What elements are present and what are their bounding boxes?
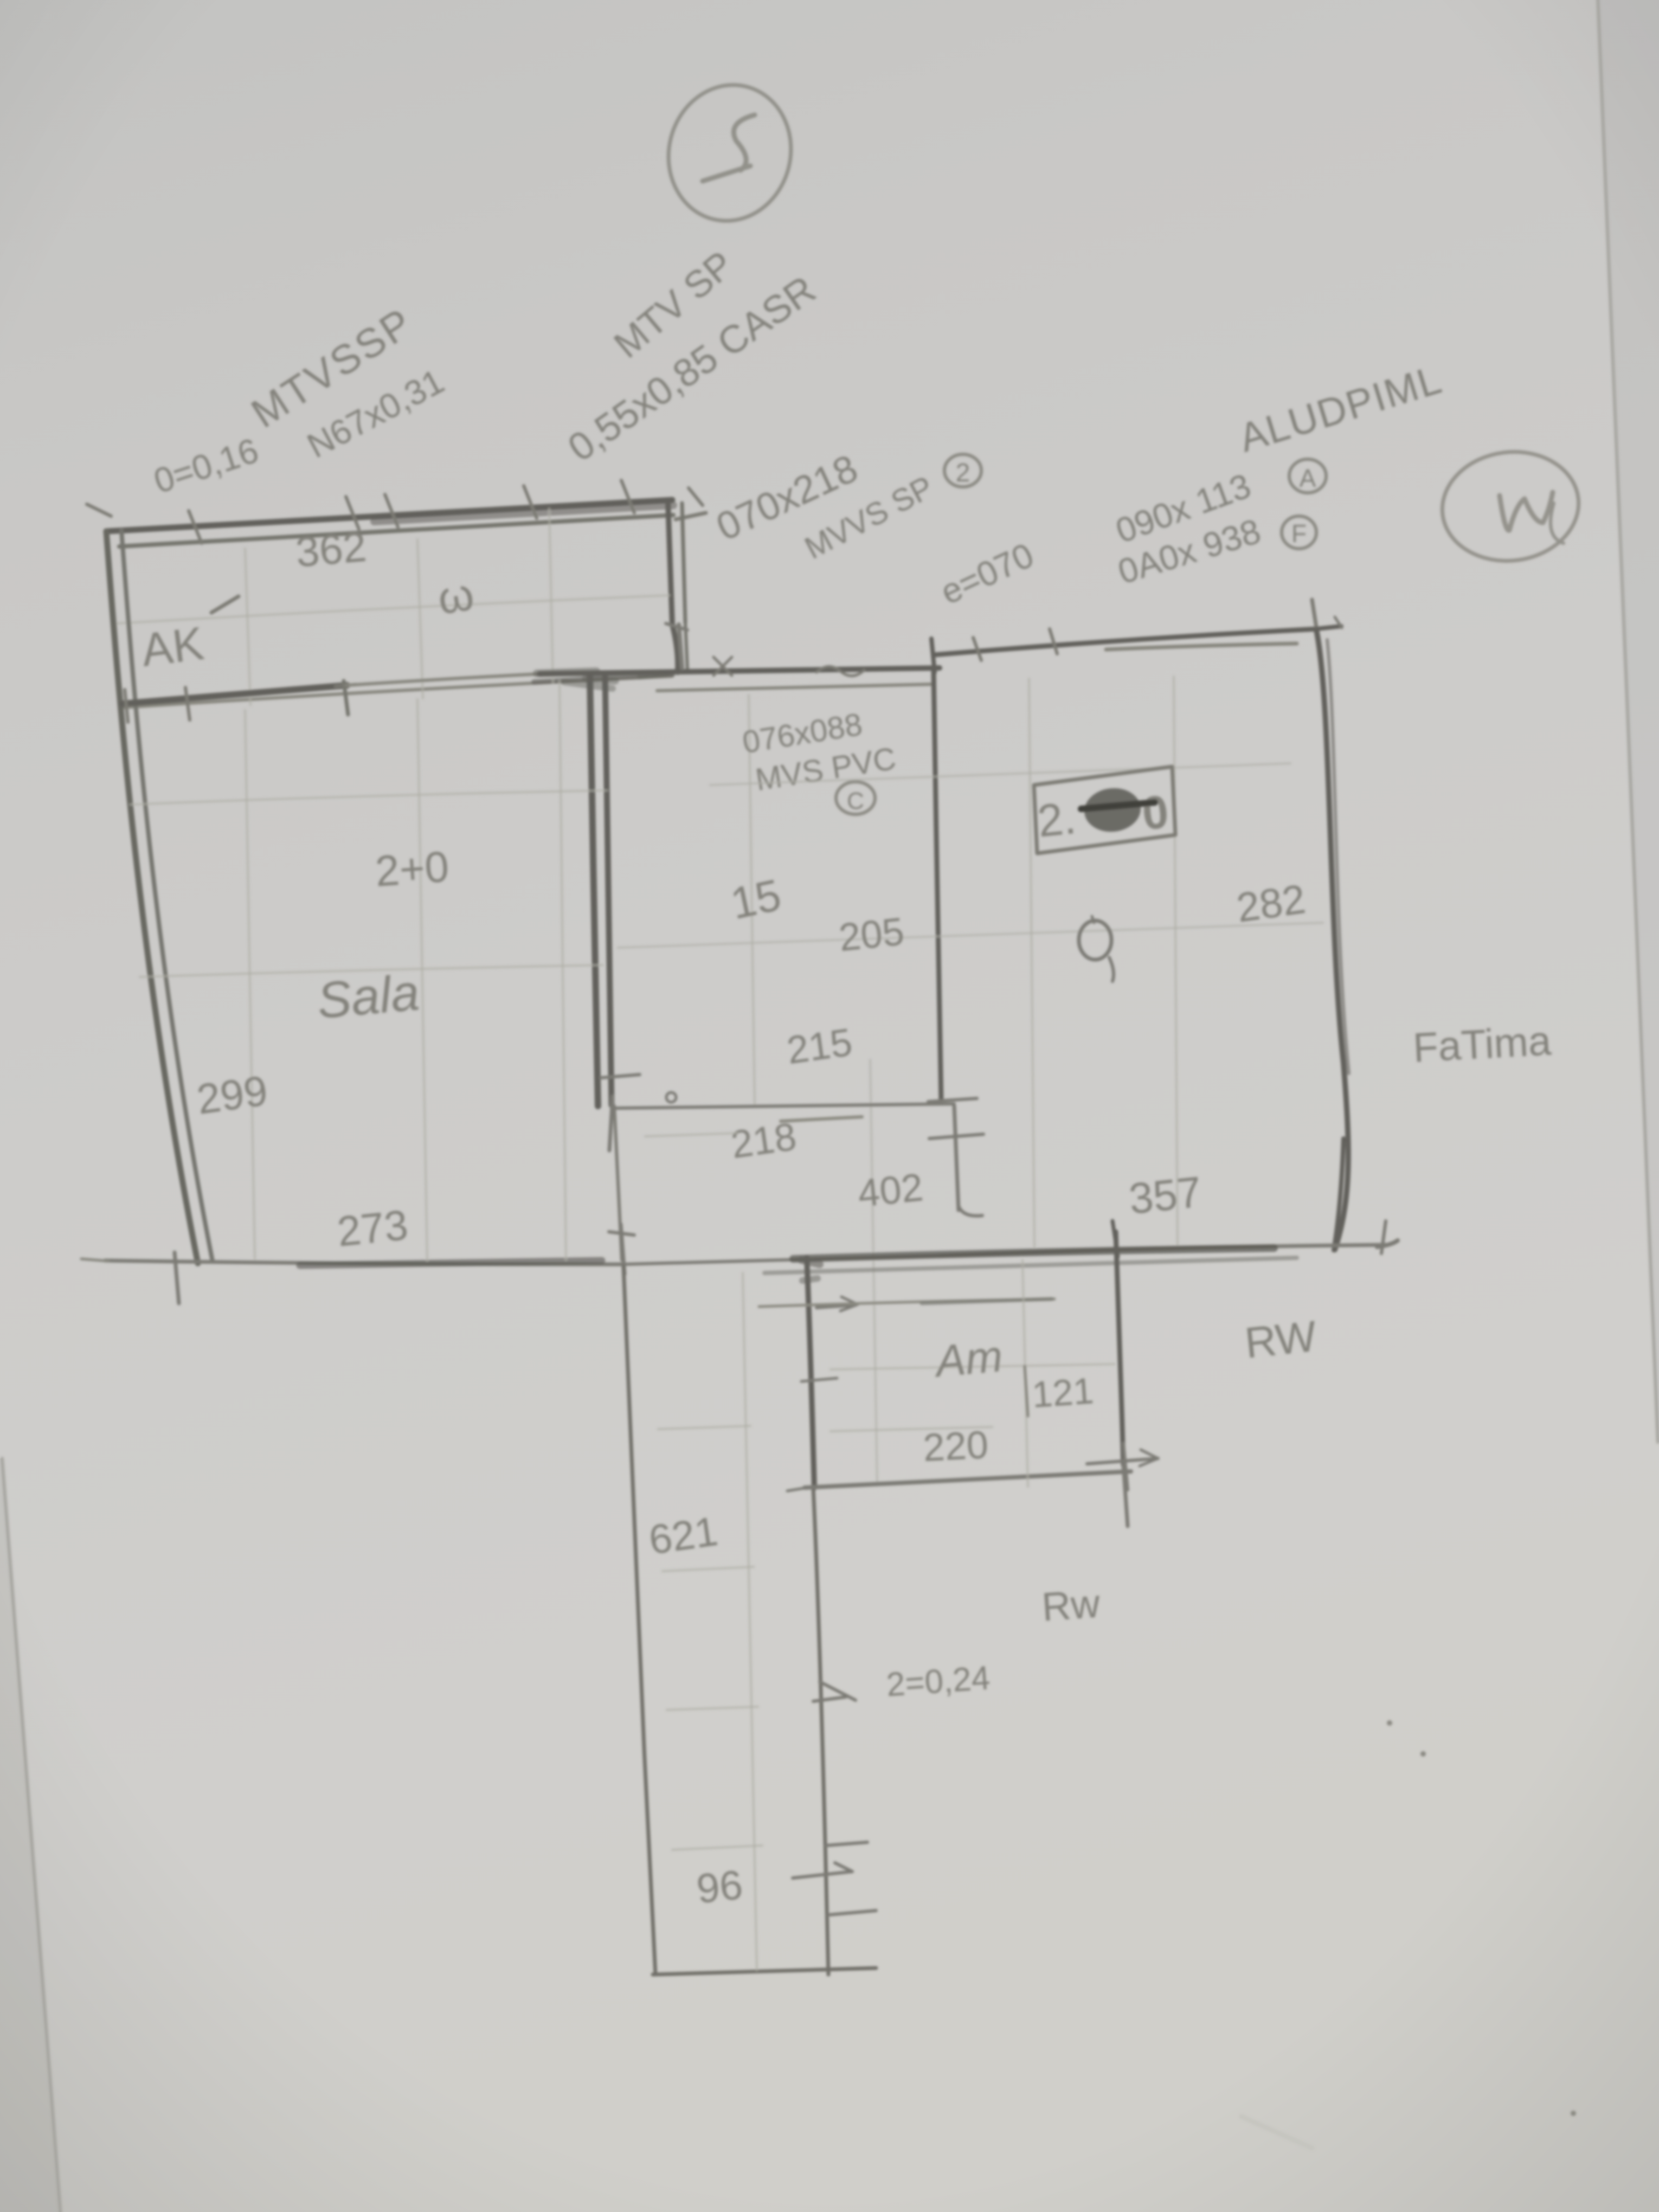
svg-text:2: 2 bbox=[956, 459, 970, 487]
svg-text:218: 218 bbox=[729, 1115, 799, 1167]
svg-text:273: 273 bbox=[335, 1201, 410, 1256]
svg-text:2+0: 2+0 bbox=[374, 842, 451, 895]
svg-text:2.: 2. bbox=[1035, 792, 1078, 847]
svg-text:Am: Am bbox=[931, 1332, 1004, 1387]
svg-text:0: 0 bbox=[1140, 786, 1171, 840]
svg-text:Rw: Rw bbox=[1040, 1580, 1102, 1629]
svg-text:RW: RW bbox=[1243, 1311, 1319, 1367]
svg-text:96: 96 bbox=[695, 1862, 745, 1912]
svg-text:Sala: Sala bbox=[315, 963, 422, 1029]
svg-text:282: 282 bbox=[1234, 876, 1308, 931]
svg-text:2=0,24: 2=0,24 bbox=[885, 1659, 992, 1703]
svg-text:A: A bbox=[1300, 464, 1316, 492]
svg-text:15: 15 bbox=[726, 870, 785, 929]
svg-text:621: 621 bbox=[646, 1508, 721, 1564]
svg-text:205: 205 bbox=[837, 910, 906, 960]
svg-text:362: 362 bbox=[294, 523, 368, 576]
svg-text:FaTima: FaTima bbox=[1412, 1018, 1553, 1071]
svg-text:299: 299 bbox=[194, 1066, 271, 1123]
svg-text:C: C bbox=[847, 788, 864, 814]
svg-text:402: 402 bbox=[856, 1166, 925, 1216]
svg-text:357: 357 bbox=[1127, 1167, 1204, 1223]
svg-text:121: 121 bbox=[1031, 1370, 1095, 1416]
svg-text:F: F bbox=[1291, 519, 1307, 548]
svg-text:AK: AK bbox=[139, 618, 207, 677]
svg-text:220: 220 bbox=[922, 1423, 989, 1470]
svg-text:215: 215 bbox=[785, 1020, 855, 1072]
